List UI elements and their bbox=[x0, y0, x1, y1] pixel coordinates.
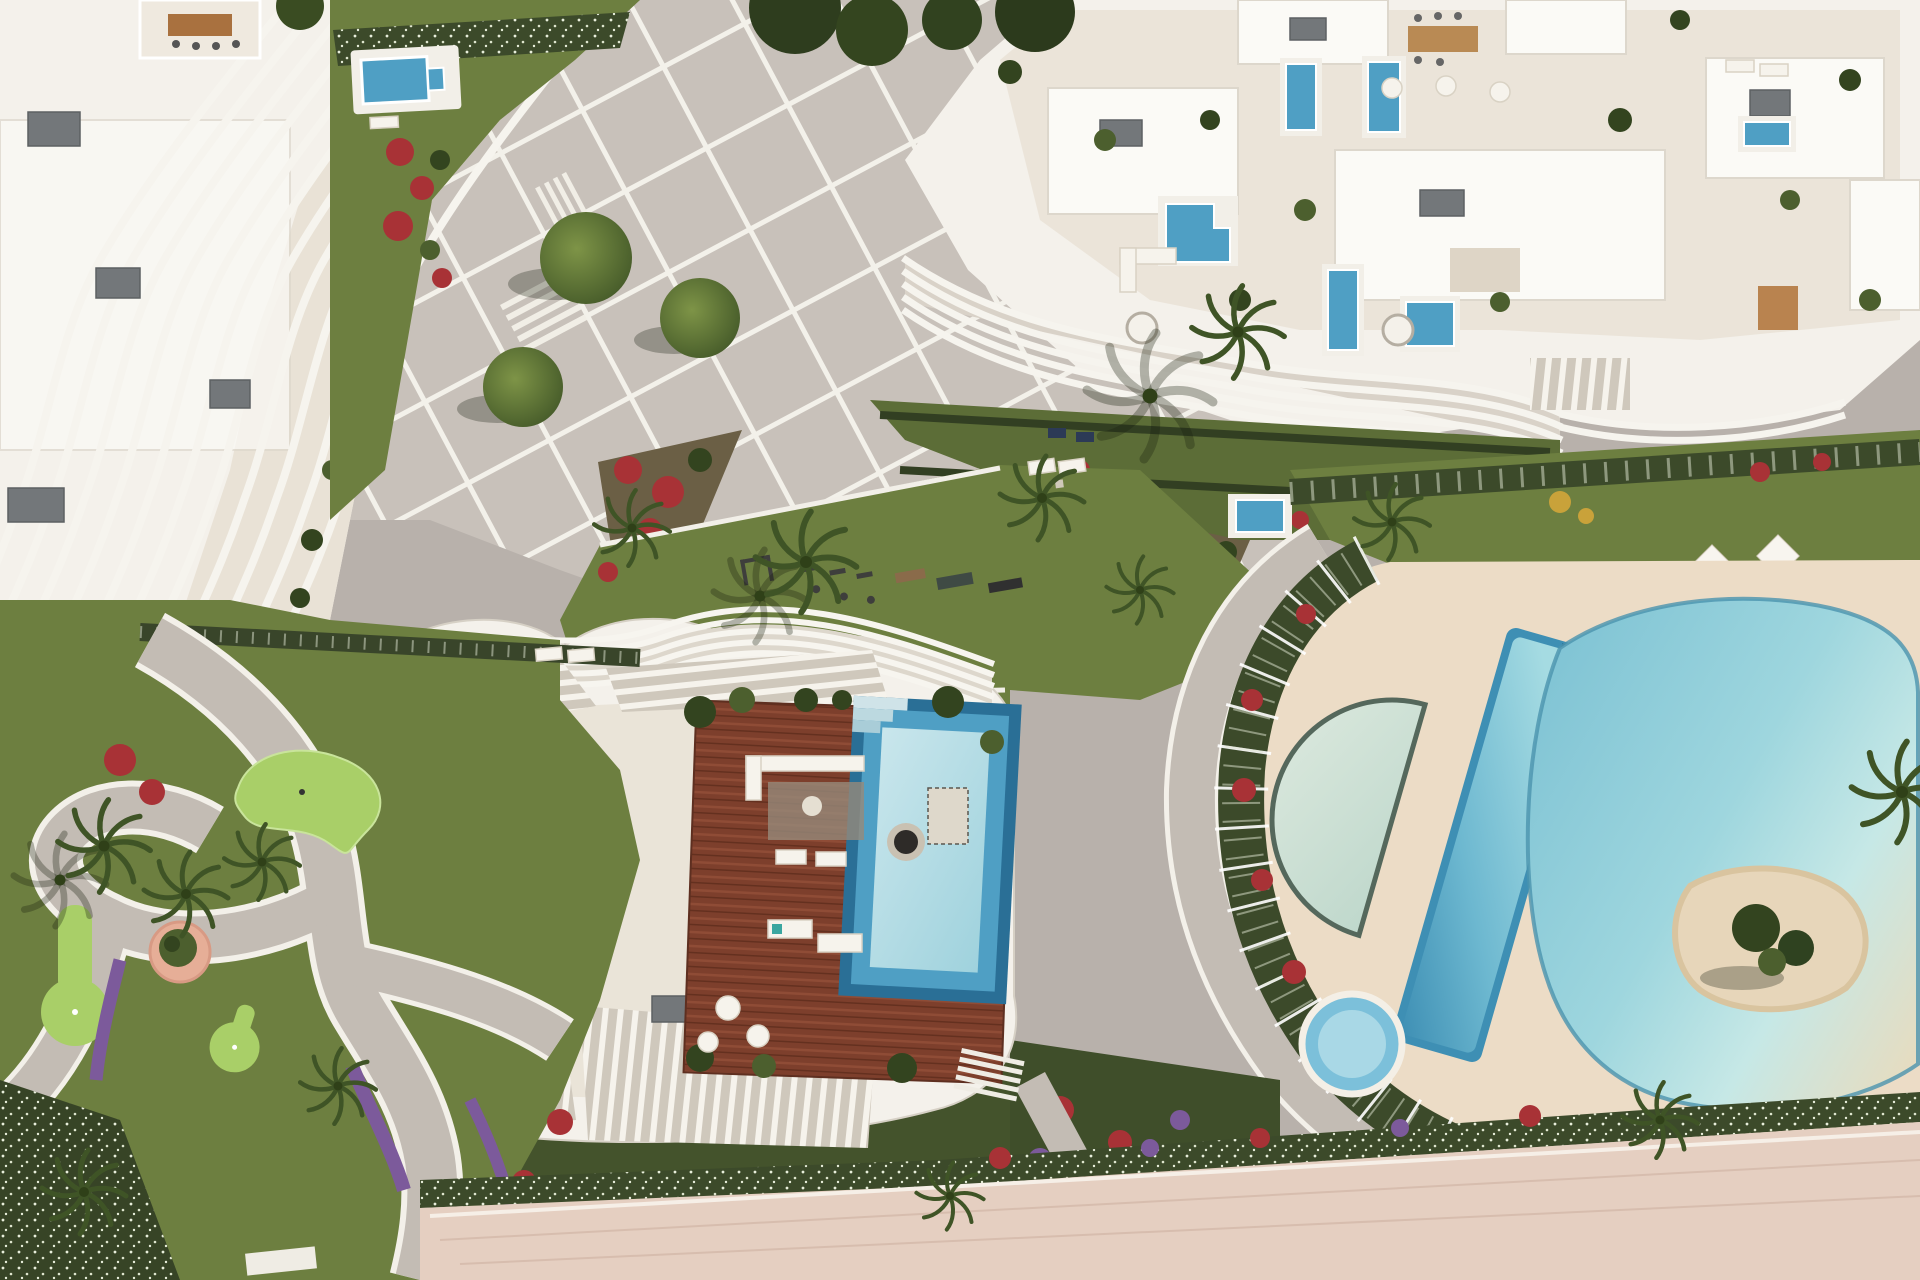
tree bbox=[483, 347, 563, 427]
kids-pool-shallow bbox=[1318, 1010, 1386, 1078]
dining-table bbox=[1758, 286, 1798, 330]
dining-table bbox=[168, 14, 232, 36]
lagoon-pool bbox=[1528, 599, 1918, 1110]
plunge-pool bbox=[1744, 122, 1790, 146]
flower-bed-yellow bbox=[1549, 491, 1571, 513]
island-shrub bbox=[1732, 904, 1780, 952]
rooftop-pergola bbox=[140, 0, 260, 58]
plunge-pool bbox=[1286, 64, 1316, 130]
spiral-staircase bbox=[1383, 315, 1413, 345]
round-planter bbox=[150, 922, 210, 982]
aerial-render bbox=[0, 0, 1920, 1280]
scene-svg bbox=[0, 0, 1920, 1280]
plunge-pool bbox=[1236, 500, 1284, 532]
lounger bbox=[370, 116, 399, 128]
plunge-pool bbox=[1328, 270, 1358, 350]
slatted-pergola bbox=[1530, 358, 1630, 410]
tree bbox=[540, 212, 632, 304]
dining-table bbox=[1408, 26, 1478, 52]
tree bbox=[660, 278, 740, 358]
